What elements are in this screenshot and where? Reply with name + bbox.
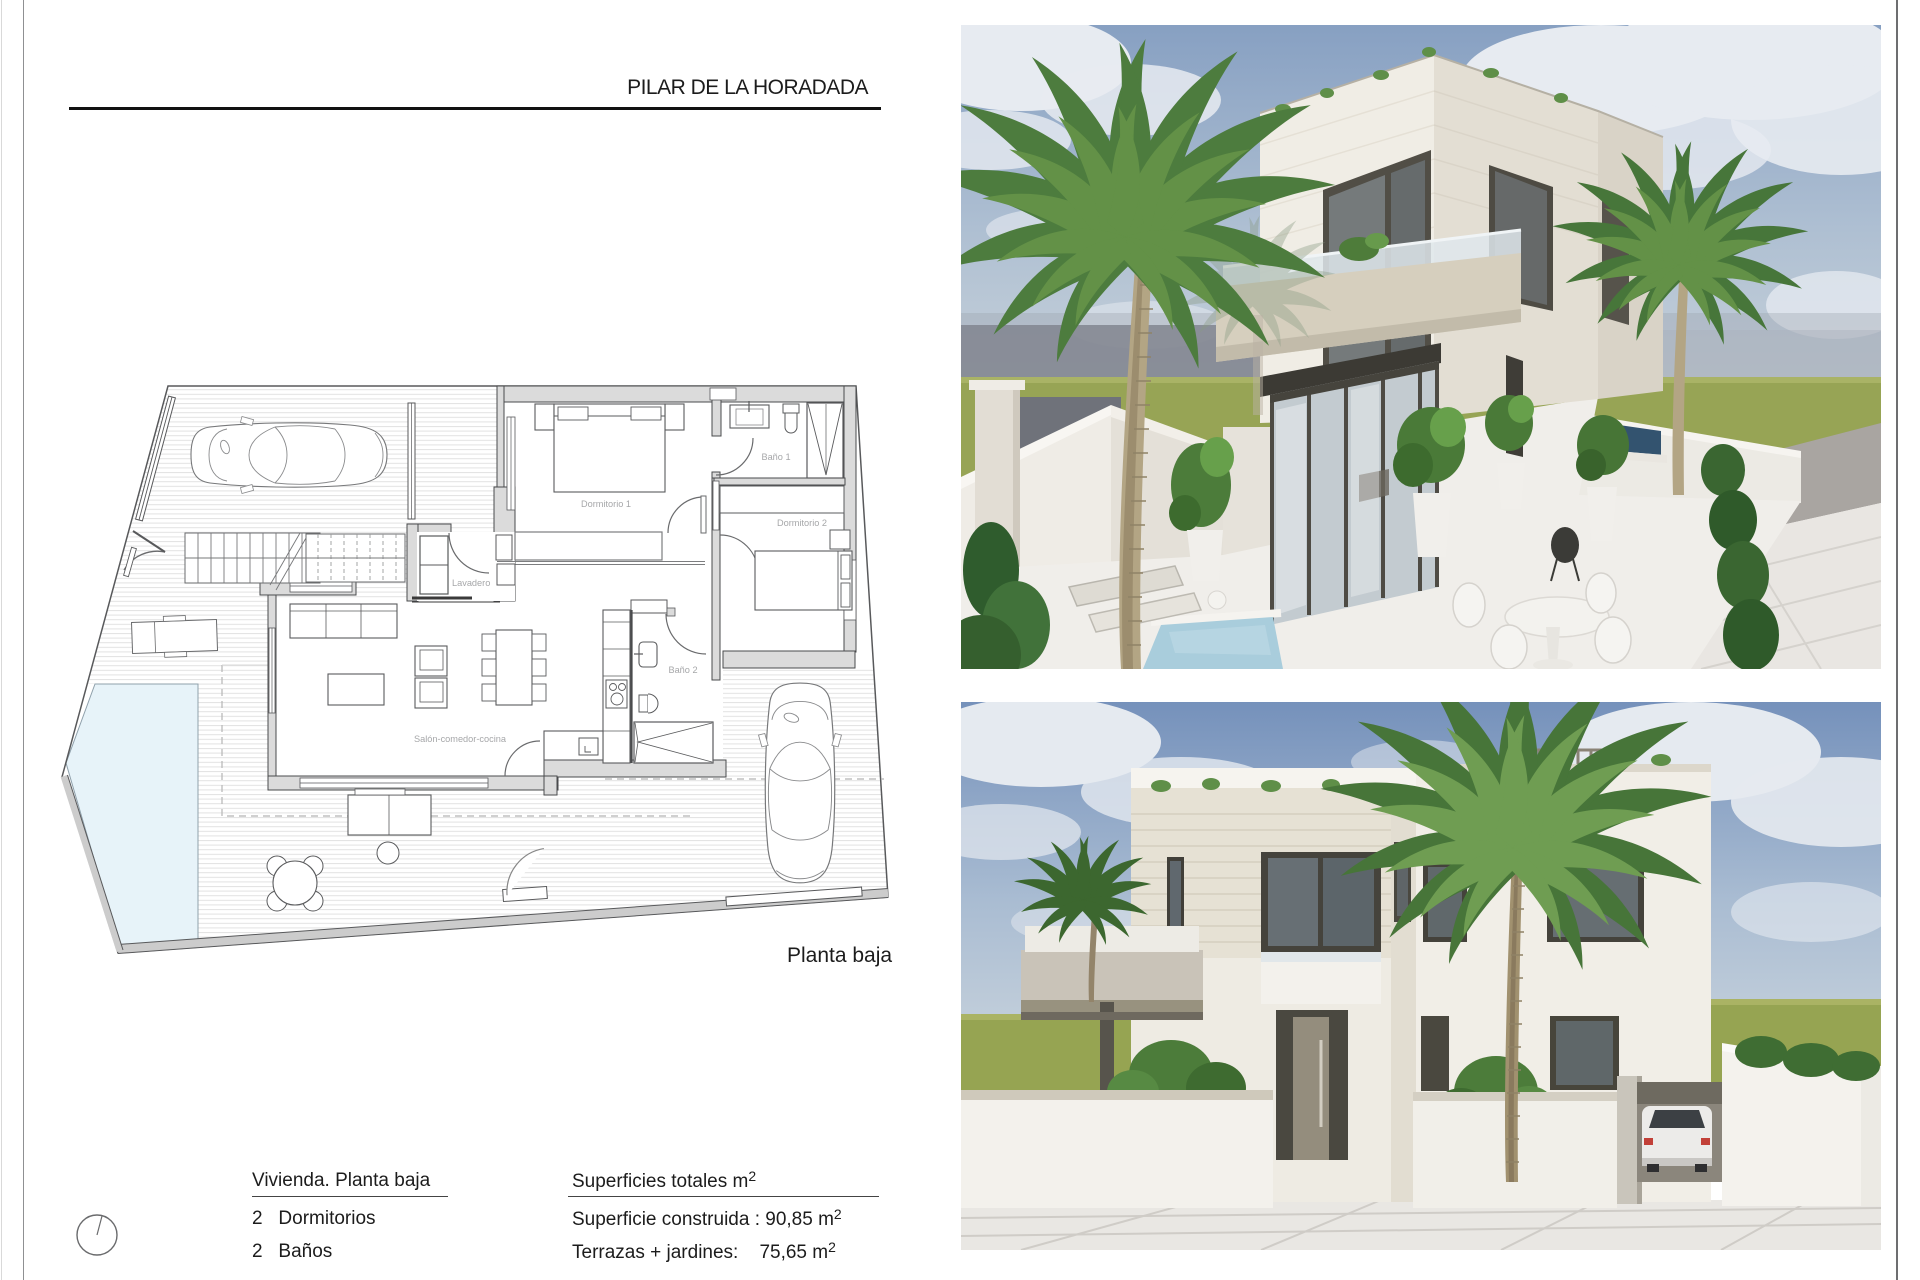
svg-text:Salón-comedor-cocina: Salón-comedor-cocina [414, 734, 507, 744]
svg-text:Dormitorio 1: Dormitorio 1 [581, 499, 631, 509]
svg-text:Lavadero: Lavadero [452, 578, 490, 588]
svg-text:Baño 1: Baño 1 [761, 452, 790, 462]
svg-text:Baño 2: Baño 2 [668, 665, 697, 675]
svg-text:Dormitorio 2: Dormitorio 2 [777, 518, 827, 528]
